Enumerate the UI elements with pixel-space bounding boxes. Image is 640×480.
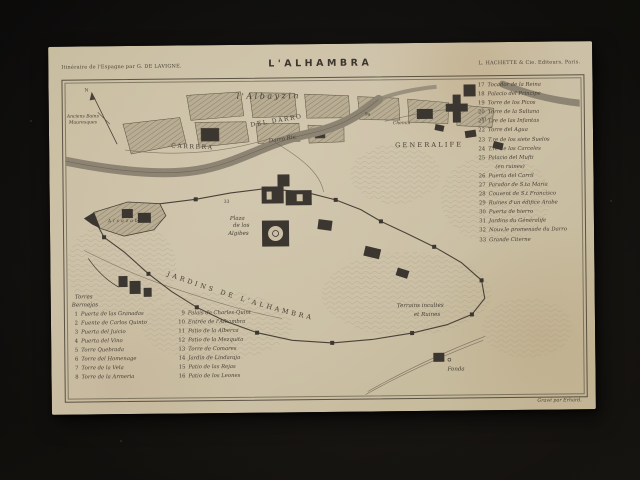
label-albayzin: l'Albayzin — [237, 91, 302, 101]
label-baths-1: Anciens Bains — [66, 113, 100, 119]
charles-v-palace — [262, 220, 289, 246]
label-fonda: Fonda — [446, 367, 464, 373]
legend-item: 33Grande Citerne — [476, 235, 567, 245]
label-baths-2: Mauresques — [68, 119, 98, 125]
label-plaza-2: de los — [233, 223, 250, 229]
marker-33: 33 — [224, 199, 230, 205]
legend-item: 6Torre del Homenage — [68, 355, 147, 365]
legend-item: 2Fuente de Carlos Quinto — [68, 319, 147, 329]
legend-item: 14Jardin de Lindaraja — [175, 354, 251, 364]
publisher-imprint-right: L. HACHETTE & Cie. Editeurs, Paris. — [478, 59, 580, 66]
label-terrains-2: et Ruines — [414, 312, 441, 318]
label-carrera: CARRERA — [171, 143, 214, 152]
label-torres-1: Torres — [75, 294, 93, 300]
legend-item: 25Palacio del Mufti(en ruines) — [475, 153, 566, 172]
label-torres-2: Bermejas — [71, 302, 98, 308]
legend-column-2: 9Palais de Charles-Quint10Entrée de l'Al… — [175, 309, 252, 382]
label-plaza-3: Algibes — [227, 231, 249, 237]
marker-9a: 9a — [365, 111, 371, 117]
label-plaza-1: Plaza — [229, 216, 245, 222]
compass-n-label: N — [85, 87, 89, 93]
label-alcazaba: Alcazaba — [107, 218, 145, 224]
legend-item: 16Patio de los Leones — [176, 372, 252, 382]
dust-speck — [30, 120, 32, 122]
legend-item: 12Patio de la Mezquita — [175, 336, 251, 346]
label-generalife: GENERALIFE — [395, 141, 463, 150]
legend-item: 10Entrée de l'Alhambra — [175, 318, 251, 328]
legend-item: 32Nouv.le promenade du Darro — [476, 226, 567, 236]
legend-column-1: 1Puerta de las Granadas2Fuente de Carlos… — [68, 310, 148, 383]
engraver-credit: Gravé par Erhard. — [537, 398, 582, 403]
legend-item: 8Torre de la Armeria — [69, 373, 148, 383]
dust-speck — [610, 200, 612, 202]
dust-speck — [120, 440, 122, 442]
legend-column-3: 17Tocador de la Reina18Palacio del Princ… — [474, 80, 567, 245]
label-terrains-1: Terrains incultes — [397, 303, 444, 309]
legend-item: 29Ruines d'un édifice Arabe — [476, 199, 567, 209]
label-chemin: Chemin — [393, 120, 411, 126]
map-sheet: Itinéraire de l'Espagne par G. DE LAVIGN… — [48, 41, 596, 415]
